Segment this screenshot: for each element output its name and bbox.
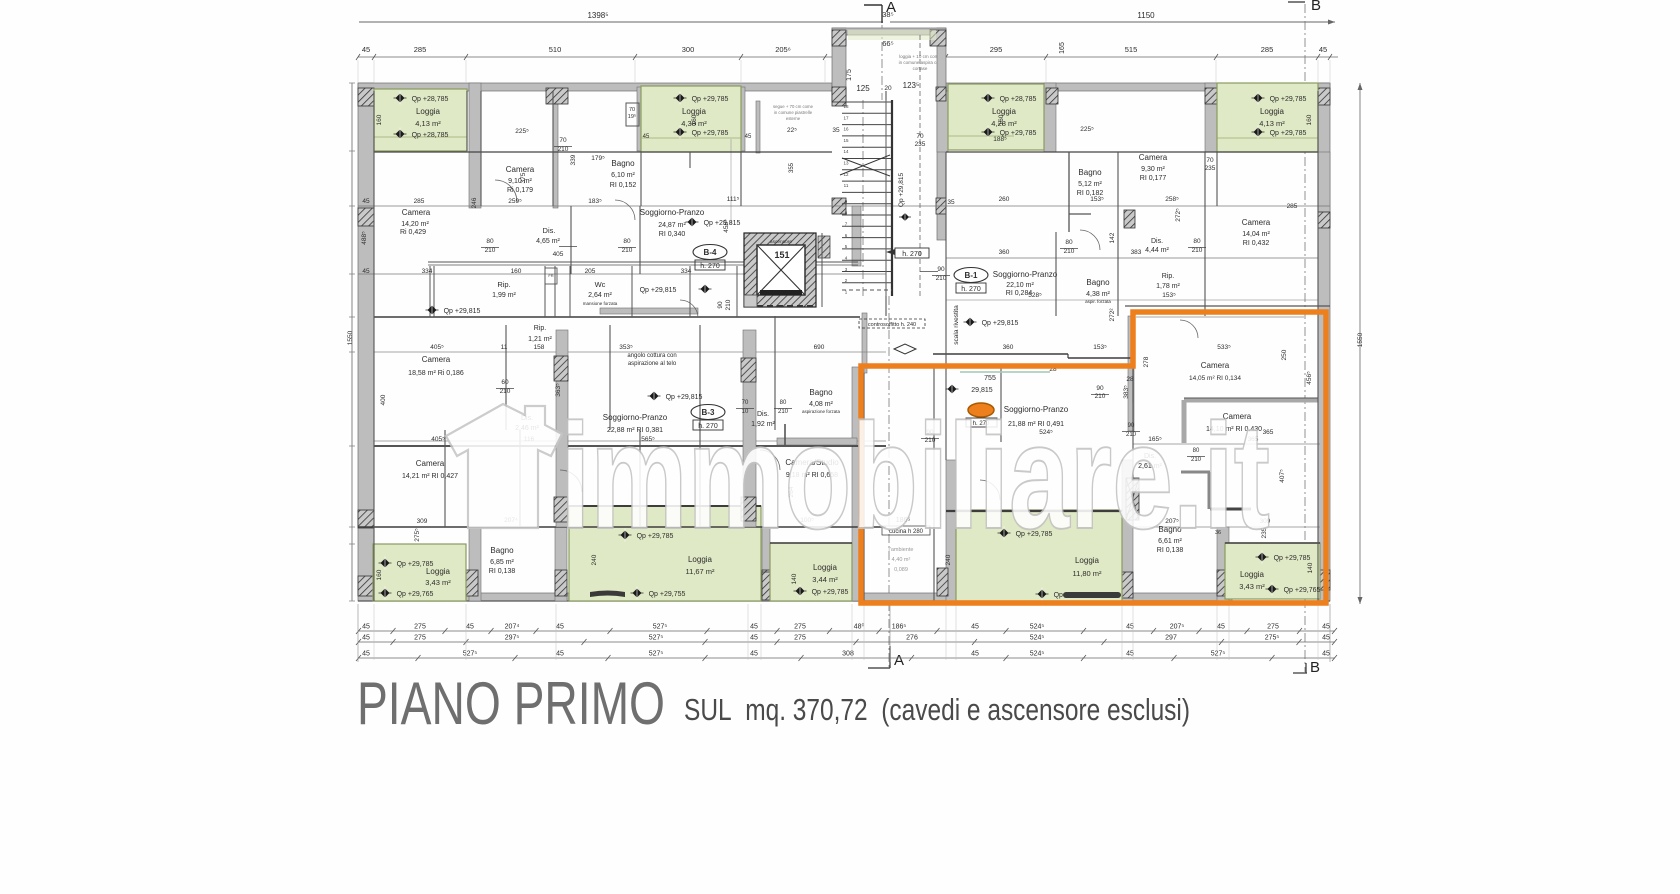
svg-text:immobiliare.it: immobiliare.it [560,392,1270,560]
svg-text:360: 360 [1003,344,1014,351]
svg-text:ascensore: ascensore [770,239,792,245]
svg-text:210: 210 [622,247,633,254]
svg-text:210: 210 [936,275,947,282]
svg-text:456⁵: 456⁵ [1306,371,1313,385]
svg-text:142: 142 [1109,232,1116,243]
svg-text:17: 17 [843,115,849,120]
svg-text:90: 90 [717,301,724,309]
svg-text:275: 275 [414,635,426,642]
svg-text:9,30 m²: 9,30 m² [1141,166,1165,173]
svg-text:60: 60 [501,379,509,386]
svg-text:45: 45 [556,651,564,658]
svg-text:160: 160 [511,268,522,275]
svg-text:160: 160 [998,114,1005,125]
svg-text:70: 70 [1206,157,1214,164]
svg-text:Qp +29,815: Qp +29,815 [640,287,677,294]
svg-text:285: 285 [1287,203,1298,210]
svg-text:aspirazione al telo: aspirazione al telo [628,361,677,367]
svg-text:2,64 m²: 2,64 m² [588,292,612,299]
svg-text:Camera: Camera [1201,361,1230,370]
svg-text:in comune piastrelle: in comune piastrelle [774,110,813,115]
svg-text:158: 158 [534,344,545,351]
svg-text:205: 205 [585,268,596,275]
svg-text:1150: 1150 [1137,11,1155,20]
svg-text:RI 0,152: RI 0,152 [610,182,637,189]
svg-text:210: 210 [1064,248,1075,255]
svg-text:225⁵: 225⁵ [1080,126,1094,133]
svg-text:Loggia: Loggia [416,107,441,116]
svg-text:528⁵: 528⁵ [1028,292,1042,299]
svg-text:48⁰: 48⁰ [854,623,865,631]
svg-text:151: 151 [774,250,789,260]
svg-text:Ri 0,179: Ri 0,179 [507,187,533,194]
svg-text:h. 270: h. 270 [700,263,720,270]
svg-text:90: 90 [1096,385,1104,392]
svg-text:aspir. forzata: aspir. forzata [1085,299,1111,304]
svg-text:scala rivestita: scala rivestita [953,305,960,345]
svg-text:275: 275 [414,624,426,631]
svg-text:Qp +28,785: Qp +28,785 [1000,96,1037,103]
svg-text:Qp +29,765: Qp +29,765 [1284,587,1321,594]
svg-text:segue + 70 cm come: segue + 70 cm come [773,104,814,109]
svg-text:A: A [886,0,896,16]
svg-text:80: 80 [486,238,494,245]
svg-text:3,43 m²: 3,43 m² [425,578,451,587]
svg-text:510: 510 [549,45,562,54]
svg-text:4,44 m²: 4,44 m² [1145,247,1169,254]
svg-text:690: 690 [814,344,825,351]
svg-text:1,99 m²: 1,99 m² [492,292,516,299]
svg-text:275: 275 [794,635,806,642]
svg-text:400: 400 [380,394,387,405]
svg-text:Loggia: Loggia [1260,107,1285,116]
svg-text:Ri 0,429: Ri 0,429 [400,229,426,236]
svg-text:246: 246 [471,197,478,208]
svg-text:Qp +29,815: Qp +29,815 [898,173,905,208]
svg-text:165: 165 [1059,42,1066,54]
svg-text:527⁵: 527⁵ [1211,651,1226,658]
svg-text:4,13 m²: 4,13 m² [415,119,441,128]
svg-text:6,85 m²: 6,85 m² [490,559,514,566]
svg-text:295: 295 [990,45,1003,54]
svg-text:B-4: B-4 [704,248,717,257]
svg-text:RI 0,177: RI 0,177 [1140,175,1167,182]
svg-text:70: 70 [559,137,567,144]
svg-text:272²: 272² [1109,308,1116,322]
svg-text:405: 405 [553,251,564,258]
svg-text:22,10 m²: 22,10 m² [1006,282,1034,289]
svg-text:SUL mq. 370,72 (cavedi e asc: SUL mq. 370,72 (cavedi e ascensore esclu… [684,692,1190,727]
svg-text:24,87 m²: 24,87 m² [658,222,686,229]
svg-text:4,13 m²: 4,13 m² [1259,119,1285,128]
svg-text:45: 45 [362,198,370,205]
svg-text:140: 140 [791,573,798,584]
svg-text:22⁵: 22⁵ [787,127,797,134]
svg-text:235: 235 [1205,165,1216,172]
svg-text:527⁵: 527⁵ [649,651,664,658]
svg-text:18,58 m² Ri 0,186: 18,58 m² Ri 0,186 [408,370,464,377]
svg-text:B-1: B-1 [965,271,978,280]
svg-text:mansione forzata: mansione forzata [583,301,618,306]
svg-text:4,38 m²: 4,38 m² [1086,291,1110,298]
svg-text:6,10 m²: 6,10 m² [611,172,635,179]
svg-text:3,44 m²: 3,44 m² [812,575,838,584]
svg-text:488⁵: 488⁵ [361,231,368,245]
svg-text:esterne: esterne [786,116,801,121]
svg-text:272⁵: 272⁵ [1175,208,1182,222]
svg-text:285: 285 [1261,45,1274,54]
svg-text:210: 210 [485,247,496,254]
svg-text:160: 160 [691,114,698,125]
svg-text:125: 125 [856,84,870,93]
svg-text:14,21 m² RI 0,427: 14,21 m² RI 0,427 [402,473,458,480]
svg-text:205⁶: 205⁶ [775,45,791,54]
svg-text:533⁵: 533⁵ [1217,344,1231,351]
svg-text:A: A [894,652,904,669]
svg-text:Qp +29,755: Qp +29,755 [649,591,686,598]
svg-text:14,20 m²: 14,20 m² [401,221,429,228]
svg-text:527⁵: 527⁵ [649,635,664,642]
svg-text:334: 334 [422,268,433,275]
svg-text:19⁵: 19⁵ [628,113,636,120]
svg-text:285: 285 [414,198,425,205]
svg-text:28: 28 [1126,376,1134,383]
svg-text:515: 515 [1125,45,1138,54]
svg-text:210: 210 [725,299,732,310]
svg-text:11,80 m²: 11,80 m² [1072,569,1102,578]
svg-text:524⁵: 524⁵ [1030,624,1045,631]
svg-text:275: 275 [1267,624,1279,631]
svg-text:1,78 m²: 1,78 m² [1156,283,1180,290]
svg-text:Qp +29,785: Qp +29,785 [1274,555,1311,562]
svg-text:Rip.: Rip. [497,280,510,289]
svg-text:5,12 m²: 5,12 m² [1078,181,1102,188]
svg-text:297⁵: 297⁵ [505,635,520,642]
svg-text:B: B [1310,659,1320,676]
svg-text:334: 334 [681,268,692,275]
svg-text:297: 297 [1165,635,1177,642]
svg-text:285: 285 [414,45,427,54]
svg-text:FR: FR [548,273,553,278]
svg-text:45: 45 [362,635,370,642]
svg-text:Qp +29,785: Qp +29,785 [1270,130,1307,137]
svg-text:70: 70 [916,133,924,140]
svg-text:Rip.: Rip. [534,325,547,332]
svg-text:258⁵: 258⁵ [1165,196,1179,203]
svg-text:16: 16 [843,127,849,132]
svg-text:h. 270: h. 270 [961,286,981,293]
svg-text:45: 45 [362,624,370,631]
svg-text:Wc: Wc [595,280,606,289]
svg-text:309: 309 [417,518,428,525]
svg-text:360: 360 [999,249,1010,256]
svg-text:70: 70 [629,107,635,113]
svg-text:123⁵: 123⁵ [903,81,920,90]
svg-text:405⁵: 405⁵ [431,436,445,443]
svg-text:Dis.: Dis. [1151,238,1163,245]
svg-text:Dis.: Dis. [543,226,556,235]
svg-text:207⁵: 207⁵ [1170,624,1185,631]
svg-text:RI 0,340: RI 0,340 [659,231,686,238]
svg-text:235: 235 [915,141,926,148]
svg-text:Qp +29,785: Qp +29,785 [812,589,849,596]
svg-text:407⁵: 407⁵ [1279,469,1286,483]
svg-text:Qp +29,815: Qp +29,815 [444,308,481,315]
svg-text:RI 0,138: RI 0,138 [489,568,516,575]
svg-text:35: 35 [832,127,840,134]
svg-text:160: 160 [376,569,383,580]
svg-text:210: 210 [558,146,569,153]
svg-text:Rip.: Rip. [1162,273,1175,280]
svg-text:527⁵: 527⁵ [463,651,478,658]
svg-text:353⁵: 353⁵ [619,344,633,351]
svg-text:Bagno: Bagno [1086,278,1110,287]
svg-text:275⁵: 275⁵ [414,528,421,542]
svg-text:11,67 m²: 11,67 m² [685,567,715,576]
svg-text:140: 140 [1307,562,1314,573]
svg-text:45: 45 [971,651,979,658]
svg-text:35: 35 [947,199,955,206]
svg-text:355: 355 [789,162,795,173]
svg-text:186⁵: 186⁵ [892,624,907,631]
svg-text:250: 250 [1281,349,1288,360]
svg-text:1550: 1550 [347,330,354,345]
svg-text:11: 11 [501,344,508,351]
svg-text:Qp +29,785: Qp +29,785 [397,561,434,568]
svg-text:Loggia: Loggia [1240,570,1265,579]
svg-text:4,65 m²: 4,65 m² [536,238,560,245]
svg-text:1398⁵: 1398⁵ [587,11,608,20]
svg-text:14: 14 [843,149,849,154]
svg-text:11: 11 [844,183,849,188]
svg-text:456⁵: 456⁵ [723,219,730,233]
svg-text:Qp +29,785: Qp +29,785 [692,130,729,137]
svg-text:Qp +29,785: Qp +29,785 [692,96,729,103]
svg-text:45: 45 [1322,651,1330,658]
svg-text:275: 275 [794,624,806,631]
svg-text:160: 160 [376,114,383,125]
svg-text:153⁵: 153⁵ [1093,344,1107,351]
svg-text:Camera: Camera [1242,218,1271,227]
svg-text:13: 13 [843,161,849,166]
svg-text:755: 755 [984,375,996,382]
svg-text:160: 160 [1306,114,1313,125]
svg-text:14,04 m²: 14,04 m² [1242,231,1270,238]
svg-text:controsoffitto h. 240: controsoffitto h. 240 [868,322,916,328]
svg-text:Qp +29,785: Qp +29,785 [1270,96,1307,103]
svg-text:179⁵: 179⁵ [591,155,605,162]
svg-text:Bagno: Bagno [1078,168,1102,177]
svg-text:45: 45 [750,624,758,631]
svg-text:14,05 m² RI 0,134: 14,05 m² RI 0,134 [1189,375,1241,382]
svg-text:210: 210 [500,388,511,395]
svg-text:524⁵: 524⁵ [1030,635,1045,642]
svg-text:278: 278 [1143,356,1150,367]
svg-text:260: 260 [999,196,1010,203]
svg-text:183⁵: 183⁵ [588,198,602,205]
svg-text:45: 45 [466,624,474,631]
svg-text:188⁵: 188⁵ [993,136,1007,143]
svg-text:259⁵: 259⁵ [508,198,522,205]
svg-text:527⁵: 527⁵ [653,624,668,631]
svg-text:Soggiorno-Pranzo: Soggiorno-Pranzo [993,270,1058,279]
svg-text:20: 20 [884,85,892,92]
svg-text:45: 45 [362,268,370,275]
svg-text:383: 383 [1131,249,1142,256]
svg-text:RI 0,432: RI 0,432 [1243,240,1270,247]
svg-text:300: 300 [682,45,695,54]
svg-text:225⁵: 225⁵ [515,128,529,135]
svg-text:45: 45 [362,45,370,54]
svg-text:45: 45 [971,624,979,631]
svg-text:45: 45 [750,635,758,642]
svg-text:15: 15 [843,138,849,143]
svg-text:66⁵: 66⁵ [882,39,893,48]
svg-text:276: 276 [906,635,918,642]
svg-text:524⁵: 524⁵ [1030,651,1045,658]
svg-text:45: 45 [362,651,370,658]
svg-text:Qp +29,815: Qp +29,815 [982,320,1019,327]
svg-text:12: 12 [843,172,849,177]
svg-text:45: 45 [556,624,564,631]
svg-text:Soggiorno-Pranzo: Soggiorno-Pranzo [640,208,705,217]
svg-text:405⁵: 405⁵ [430,344,444,351]
svg-text:45: 45 [1322,635,1330,642]
svg-text:207⁴: 207⁴ [505,624,520,631]
svg-text:Bagno: Bagno [611,159,635,168]
svg-text:Camera: Camera [422,355,451,364]
svg-text:0,089: 0,089 [894,567,908,573]
svg-text:B: B [1311,0,1321,14]
svg-text:45: 45 [1217,624,1225,631]
svg-text:Camera: Camera [1139,153,1168,162]
svg-text:Loggia: Loggia [426,567,451,576]
svg-text:80: 80 [623,238,631,245]
svg-text:Qp +28,785: Qp +28,785 [412,132,449,139]
svg-text:339: 339 [570,154,577,165]
svg-text:175: 175 [846,69,853,81]
svg-text:80: 80 [1065,239,1073,246]
svg-text:angolo cottura con: angolo cottura con [627,353,676,359]
svg-text:45: 45 [643,134,650,140]
svg-text:45: 45 [1322,624,1330,631]
svg-text:153⁵: 153⁵ [1090,196,1104,203]
svg-text:PIANO PRIMO: PIANO PRIMO [357,670,665,737]
svg-text:275⁵: 275⁵ [1265,635,1280,642]
svg-text:45: 45 [750,651,758,658]
svg-text:111⁵: 111⁵ [727,196,740,203]
svg-text:1550: 1550 [1357,332,1364,347]
svg-text:Loggia: Loggia [813,563,838,572]
svg-text:45: 45 [1319,45,1327,54]
svg-text:90: 90 [937,266,945,273]
svg-text:18: 18 [843,104,849,109]
svg-text:3,43 m²: 3,43 m² [1239,582,1265,591]
svg-text:1,21 m²: 1,21 m² [528,336,552,343]
svg-text:Camera: Camera [416,459,445,468]
svg-text:Qp +28,785: Qp +28,785 [412,96,449,103]
svg-text:375: 375 [520,172,527,183]
svg-text:153⁵: 153⁵ [1162,292,1176,299]
svg-text:210: 210 [1192,247,1203,254]
svg-text:Qp +29,765: Qp +29,765 [397,591,434,598]
svg-text:Bagno: Bagno [490,546,514,555]
svg-text:45: 45 [745,134,752,140]
svg-text:h. 270: h. 270 [902,251,922,258]
svg-text:Camera: Camera [402,208,431,217]
svg-text:80: 80 [1193,238,1201,245]
